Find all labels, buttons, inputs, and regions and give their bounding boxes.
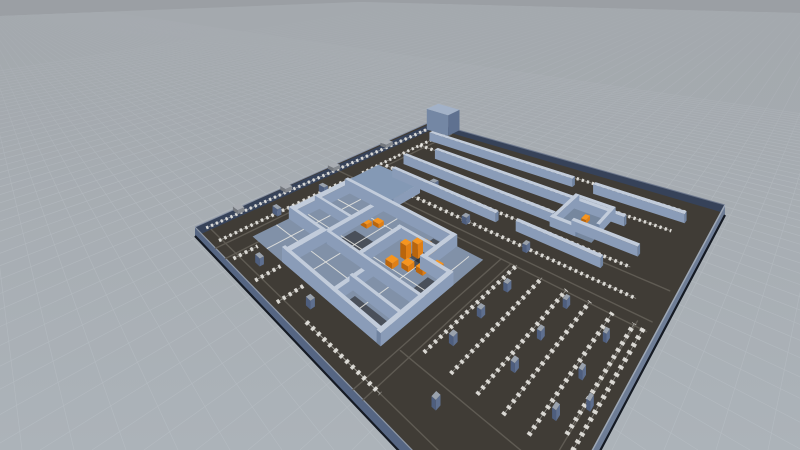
pillar-face: [603, 332, 607, 343]
scene-canvas: [0, 0, 800, 450]
3d-viewport[interactable]: [0, 0, 800, 450]
